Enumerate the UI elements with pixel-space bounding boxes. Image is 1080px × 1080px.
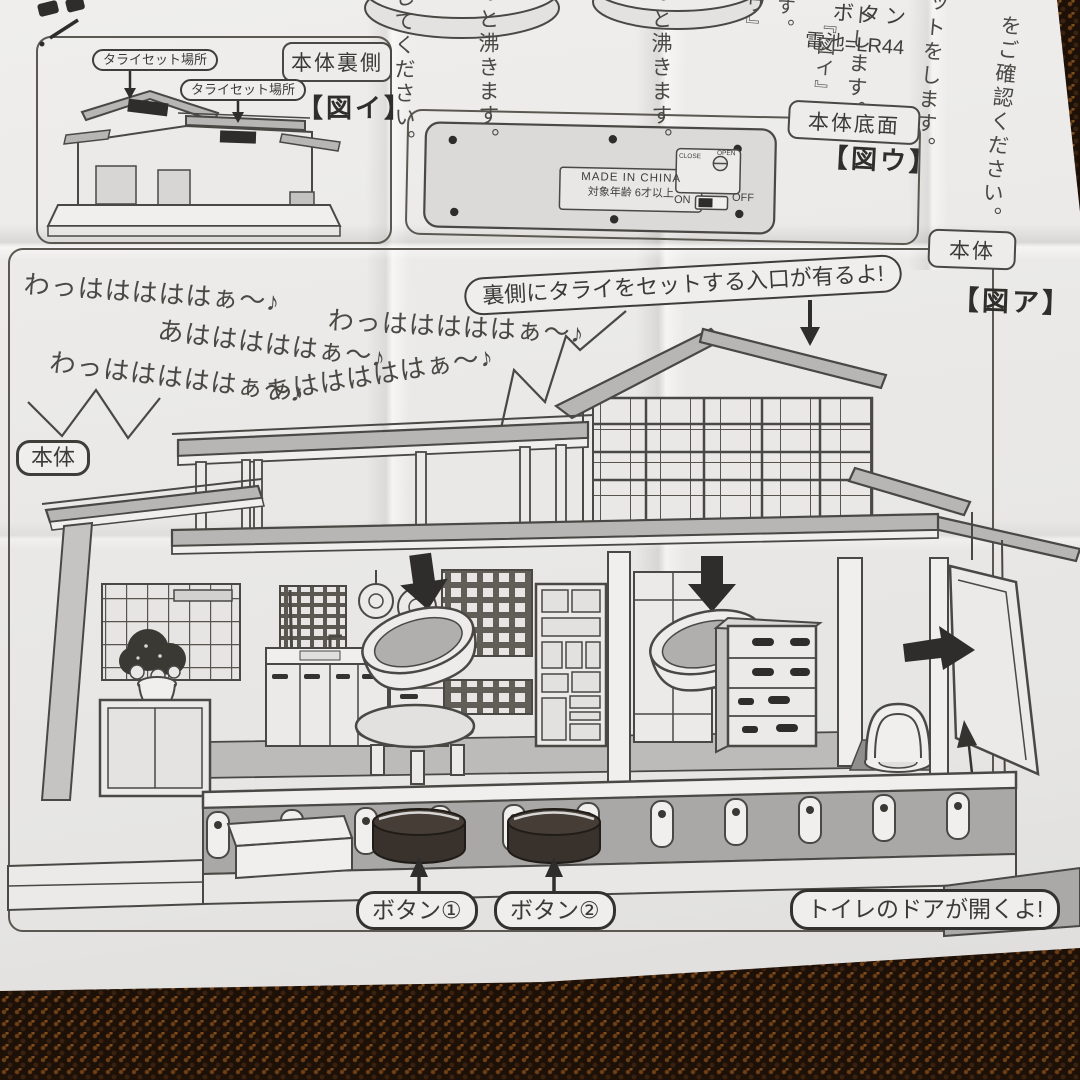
round-table [356,705,474,784]
figure-i-panel-label: 本体裏側 [282,42,392,82]
button-1-cylinder [373,809,465,863]
hanging-pan [359,584,393,618]
body-label-pill: 本体 [16,440,90,476]
door-close-text: CLOSE [679,153,701,160]
figure-a-panel-label: 本体 [927,228,1016,270]
cutoff-print-marks [37,0,86,47]
figure-a-label: 【図ア】 [951,278,1072,321]
vertical-text-column: っと沸きます。 [472,0,502,152]
toilet-door-callout: トイレのドアが開くよ! [790,889,1060,930]
door-open-text: OPEN [717,150,736,157]
switch-off-text: OFF [732,192,754,204]
toilet [865,704,931,772]
button-1-label: ボタン① [356,891,478,930]
drawer-chest [716,618,820,752]
vertical-text-column: す。 [768,0,798,41]
tarai-set-callout: タライセット場所 [180,79,306,101]
vertical-text-column: してください。 [388,0,418,154]
figure-a-house-art [8,300,1080,936]
button-2-label: ボタン② [494,891,616,930]
shoe-cabinet [100,700,210,796]
button-battery-illustration [365,0,761,38]
vertical-text-column: っと沸きます。 [645,0,675,152]
tarai-set-callout: タライセット場所 [92,49,218,71]
photo-of-instruction-sheet: ボタン 電池=LR44 してください。 っと沸きます。 っと沸きます。 ウ』 す… [0,0,1080,1080]
figure-u-label: 【図ウ】 [821,137,939,180]
vertical-text-column: ウ』 [738,0,768,39]
figure-i-label: 【図イ】 [297,88,413,125]
button-2-cylinder [508,809,600,863]
laugh-zigzag [28,390,160,438]
shelf-unit [536,584,606,746]
switch-on-text: ON [674,194,691,206]
